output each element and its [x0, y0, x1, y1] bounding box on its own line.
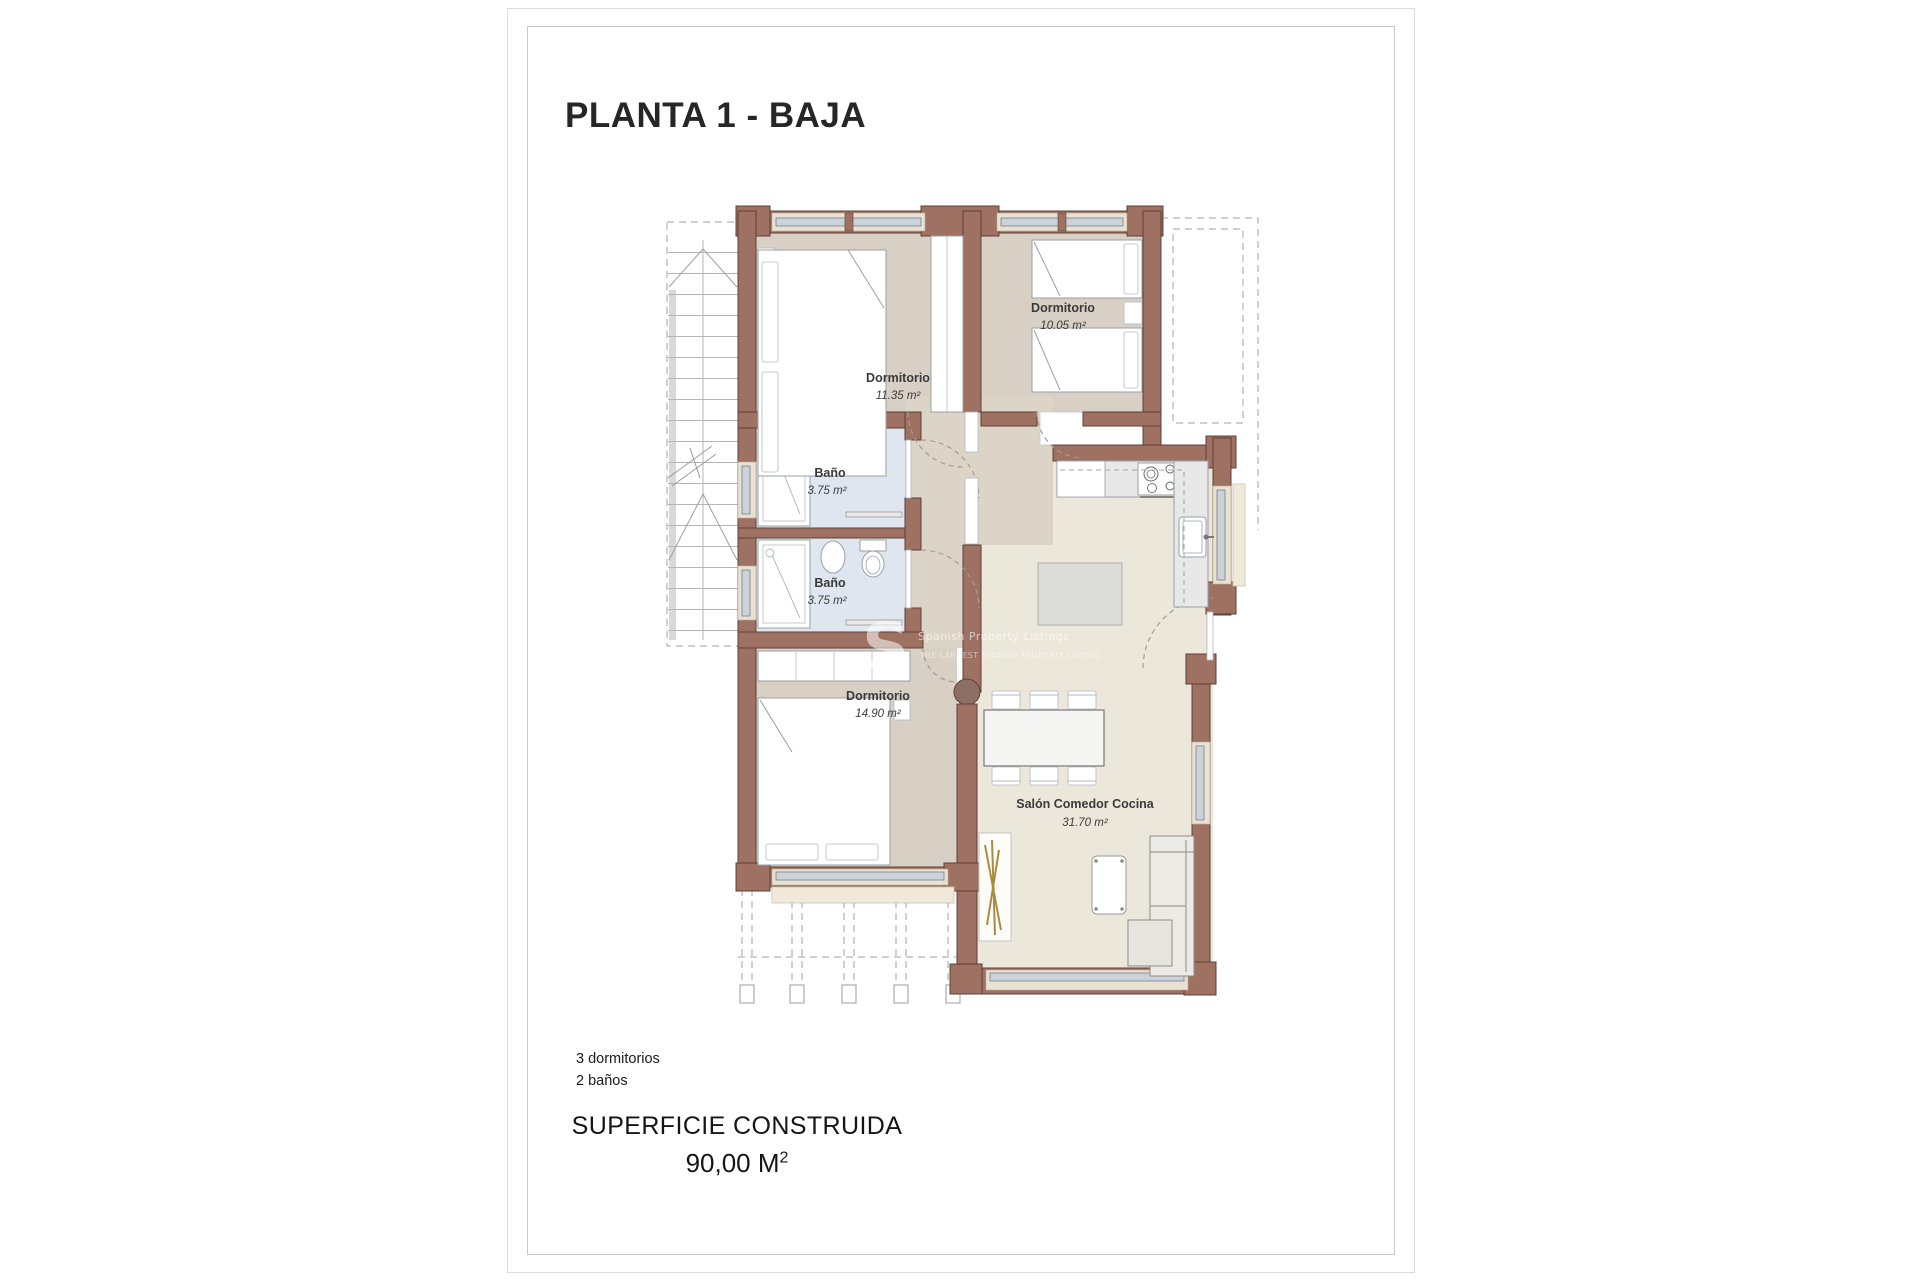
surface-value-number: 90,00 M — [686, 1148, 780, 1178]
dining-set — [984, 691, 1104, 785]
surface-block: SUPERFICIE CONSTRUIDA 90,00 M2 — [527, 1112, 947, 1179]
watermark-line2: THE LARGEST SPANISH PROPERTY LISTING — [919, 651, 1101, 660]
room-area-dormitorio-1: 11.35 m² — [876, 390, 922, 402]
surface-label: SUPERFICIE CONSTRUIDA — [527, 1112, 947, 1141]
surface-value-sup: 2 — [780, 1149, 789, 1166]
sink-2 — [821, 541, 845, 573]
toilet-2-tank — [860, 540, 886, 551]
room-label-bano-2: Baño — [814, 576, 846, 590]
outdoor-staircase — [667, 222, 739, 646]
room-area-bano-2: 3.75 m² — [808, 595, 848, 607]
room-area-bano-1: 3.75 m² — [808, 485, 848, 497]
plan-sheet-page: PLANTA 1 - BAJA — [0, 0, 1920, 1280]
towel-rail-1 — [846, 512, 902, 517]
rug — [1038, 563, 1122, 625]
watermark-line1: Spanish Property Listings — [918, 630, 1069, 643]
page-title: PLANTA 1 - BAJA — [565, 96, 866, 136]
pergola-posts — [738, 889, 962, 1003]
room-label-dormitorio-3: Dormitorio — [846, 689, 910, 703]
room-area-dormitorio-2: 10.05 m² — [1040, 320, 1087, 332]
toilet-2 — [862, 551, 884, 577]
surface-value: 90,00 M2 — [527, 1148, 947, 1179]
coffee-table — [1092, 856, 1126, 914]
watermark-logo: S — [862, 609, 910, 686]
room-area-dormitorio-3: 14.90 m² — [855, 708, 902, 720]
room-label-dormitorio-1: Dormitorio — [866, 371, 930, 385]
room-label-salon: Salón Comedor Cocina — [1016, 797, 1155, 811]
floor-plan: S Spanish Property Listings THE LARGEST … — [640, 190, 1320, 1020]
room-area-salon: 31.70 m² — [1062, 817, 1109, 829]
sofa-chaise — [1128, 920, 1172, 966]
double-bed — [758, 698, 890, 865]
room-label-bano-1: Baño — [814, 466, 846, 480]
dining-table — [984, 710, 1104, 766]
summary-bedrooms: 3 dormitorios — [576, 1049, 660, 1071]
nightstand — [1124, 302, 1142, 324]
summary-bathrooms: 2 baños — [576, 1071, 660, 1093]
room-label-dormitorio-2: Dormitorio — [1031, 301, 1095, 315]
summary-block: 3 dormitorios 2 baños — [576, 1049, 660, 1093]
